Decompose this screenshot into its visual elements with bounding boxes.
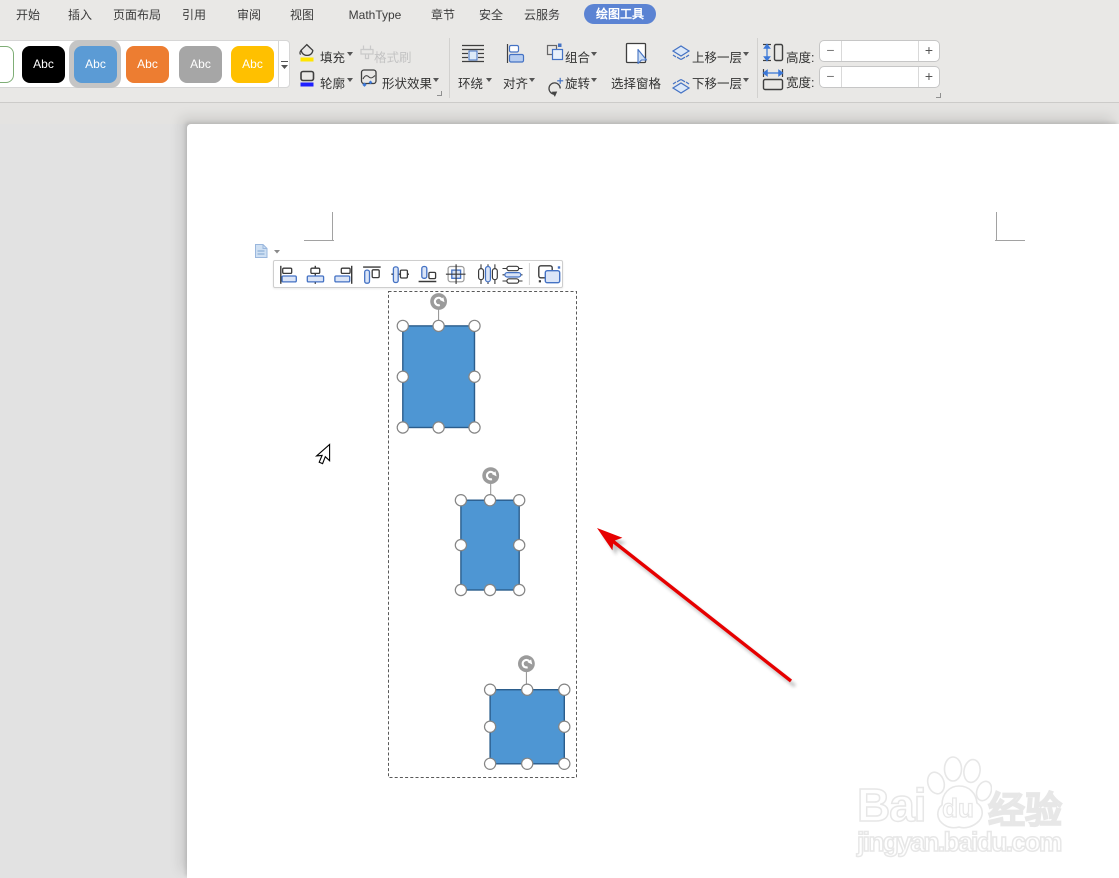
svg-text:du: du xyxy=(942,793,974,823)
